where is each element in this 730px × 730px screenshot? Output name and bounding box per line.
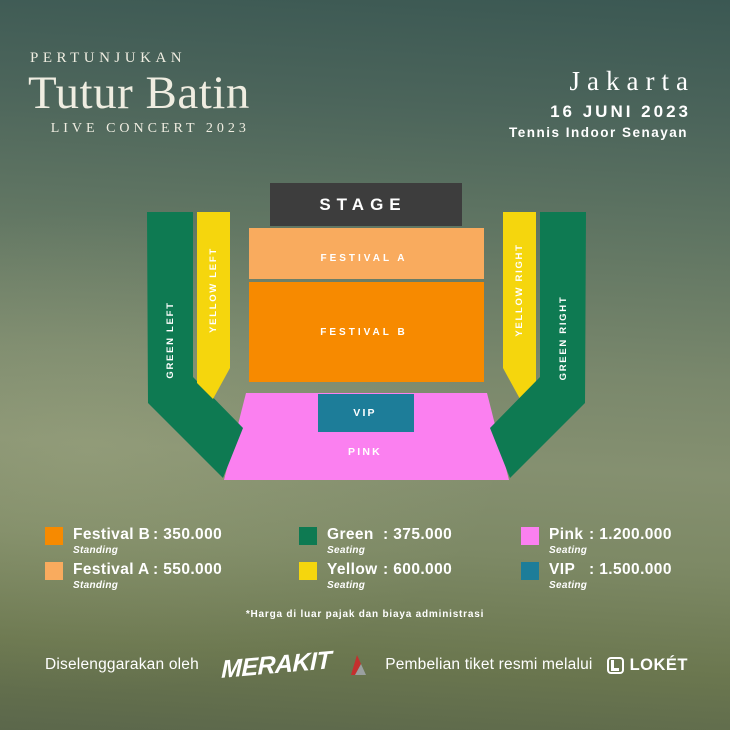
- yellow-left-label: YELLOW LEFT: [208, 247, 219, 333]
- concert-poster: PERTUNJUKAN Tutur Batin LIVE CONCERT 202…: [0, 0, 730, 730]
- legend-name: Festival A: [73, 562, 153, 578]
- legend-separator: :: [153, 561, 159, 578]
- legend-column-1: Festival B: 350.000 Standing Festival A:…: [45, 527, 222, 597]
- stage-label: STAGE: [319, 195, 406, 214]
- ticketing-label: Pembelian tiket resmi melalui: [385, 656, 592, 674]
- event-date: 16 JUNI 2023: [509, 102, 691, 122]
- legend-item-yellow: Yellow: 600.000 Seating: [299, 562, 452, 590]
- legend-type: Seating: [549, 546, 672, 556]
- city: Jakarta: [509, 66, 695, 97]
- legend-item-pink: Pink: 1.200.000 Seating: [521, 527, 672, 555]
- merakit-mark-icon: [345, 652, 369, 678]
- footer: Diselenggarakan oleh MERAKIT Pembelian t…: [0, 645, 730, 685]
- legend-type: Standing: [73, 581, 222, 591]
- green-swatch: [299, 527, 317, 545]
- legend-price: 350.000: [163, 526, 222, 543]
- merakit-logo: MERAKIT: [221, 646, 331, 685]
- show-kicker: PERTUNJUKAN: [30, 50, 250, 67]
- title-block: PERTUNJUKAN Tutur Batin LIVE CONCERT 202…: [28, 50, 250, 137]
- loket-logo: LOKÉT: [607, 656, 688, 675]
- green-left-label: GREEN LEFT: [165, 301, 176, 378]
- legend-type: Seating: [327, 546, 452, 556]
- vip-swatch: [521, 562, 539, 580]
- legend-price: 600.000: [393, 561, 452, 578]
- legend-name: Pink: [549, 527, 589, 543]
- legend-name: Green: [327, 527, 383, 543]
- venue-name: Tennis Indoor Senayan: [509, 125, 688, 140]
- legend-column-3: Pink: 1.200.000 Seating VIP: 1.500.000 S…: [521, 527, 672, 597]
- yellow-swatch: [299, 562, 317, 580]
- organizer-label: Diselenggarakan oleh: [45, 656, 199, 674]
- legend-item-green: Green: 375.000 Seating: [299, 527, 452, 555]
- legend-price: 550.000: [163, 561, 222, 578]
- legend-item-festival-b: Festival B: 350.000 Standing: [45, 527, 222, 555]
- legend-type: Standing: [73, 546, 222, 556]
- seat-map: STAGE FESTIVAL A FESTIVAL B PINK VIP GRE…: [0, 180, 730, 490]
- legend-separator: :: [383, 561, 389, 578]
- festival-a-label: FESTIVAL A: [320, 253, 407, 264]
- legend-name: Festival B: [73, 527, 153, 543]
- pink-label: PINK: [348, 446, 382, 458]
- legend-item-vip: VIP: 1.500.000 Seating: [521, 562, 672, 590]
- pink-swatch: [521, 527, 539, 545]
- legend-name: VIP: [549, 562, 589, 578]
- organizer-block: Diselenggarakan oleh MERAKIT: [45, 651, 369, 680]
- legend-price: 375.000: [393, 526, 452, 543]
- price-note: *Harga di luar pajak dan biaya administr…: [0, 609, 730, 620]
- legend-item-festival-a: Festival A: 550.000 Standing: [45, 562, 222, 590]
- legend-column-2: Green: 375.000 Seating Yellow: 600.000 S…: [299, 527, 452, 597]
- legend-type: Seating: [327, 581, 452, 591]
- legend-separator: :: [383, 526, 389, 543]
- legend-separator: :: [153, 526, 159, 543]
- festival-b-swatch: [45, 527, 63, 545]
- green-right-label: GREEN RIGHT: [558, 296, 569, 381]
- vip-label: VIP: [353, 407, 377, 419]
- legend-type: Seating: [549, 581, 672, 591]
- festival-b-label: FESTIVAL B: [320, 327, 407, 338]
- festival-a-swatch: [45, 562, 63, 580]
- legend-name: Yellow: [327, 562, 383, 578]
- loket-wordmark: LOKÉT: [630, 656, 688, 675]
- loket-badge-icon: [607, 657, 624, 674]
- show-subtitle: LIVE CONCERT 2023: [28, 121, 250, 137]
- legend-price: 1.200.000: [599, 526, 672, 543]
- yellow-right-label: YELLOW RIGHT: [514, 243, 525, 336]
- show-title: Tutur Batin: [28, 70, 250, 117]
- venue-block: Jakarta 16 JUNI 2023 Tennis Indoor Senay…: [509, 66, 688, 140]
- legend-separator: :: [589, 561, 595, 578]
- legend-price: 1.500.000: [599, 561, 672, 578]
- ticketing-block: Pembelian tiket resmi melalui LOKÉT: [385, 656, 688, 675]
- legend-separator: :: [589, 526, 595, 543]
